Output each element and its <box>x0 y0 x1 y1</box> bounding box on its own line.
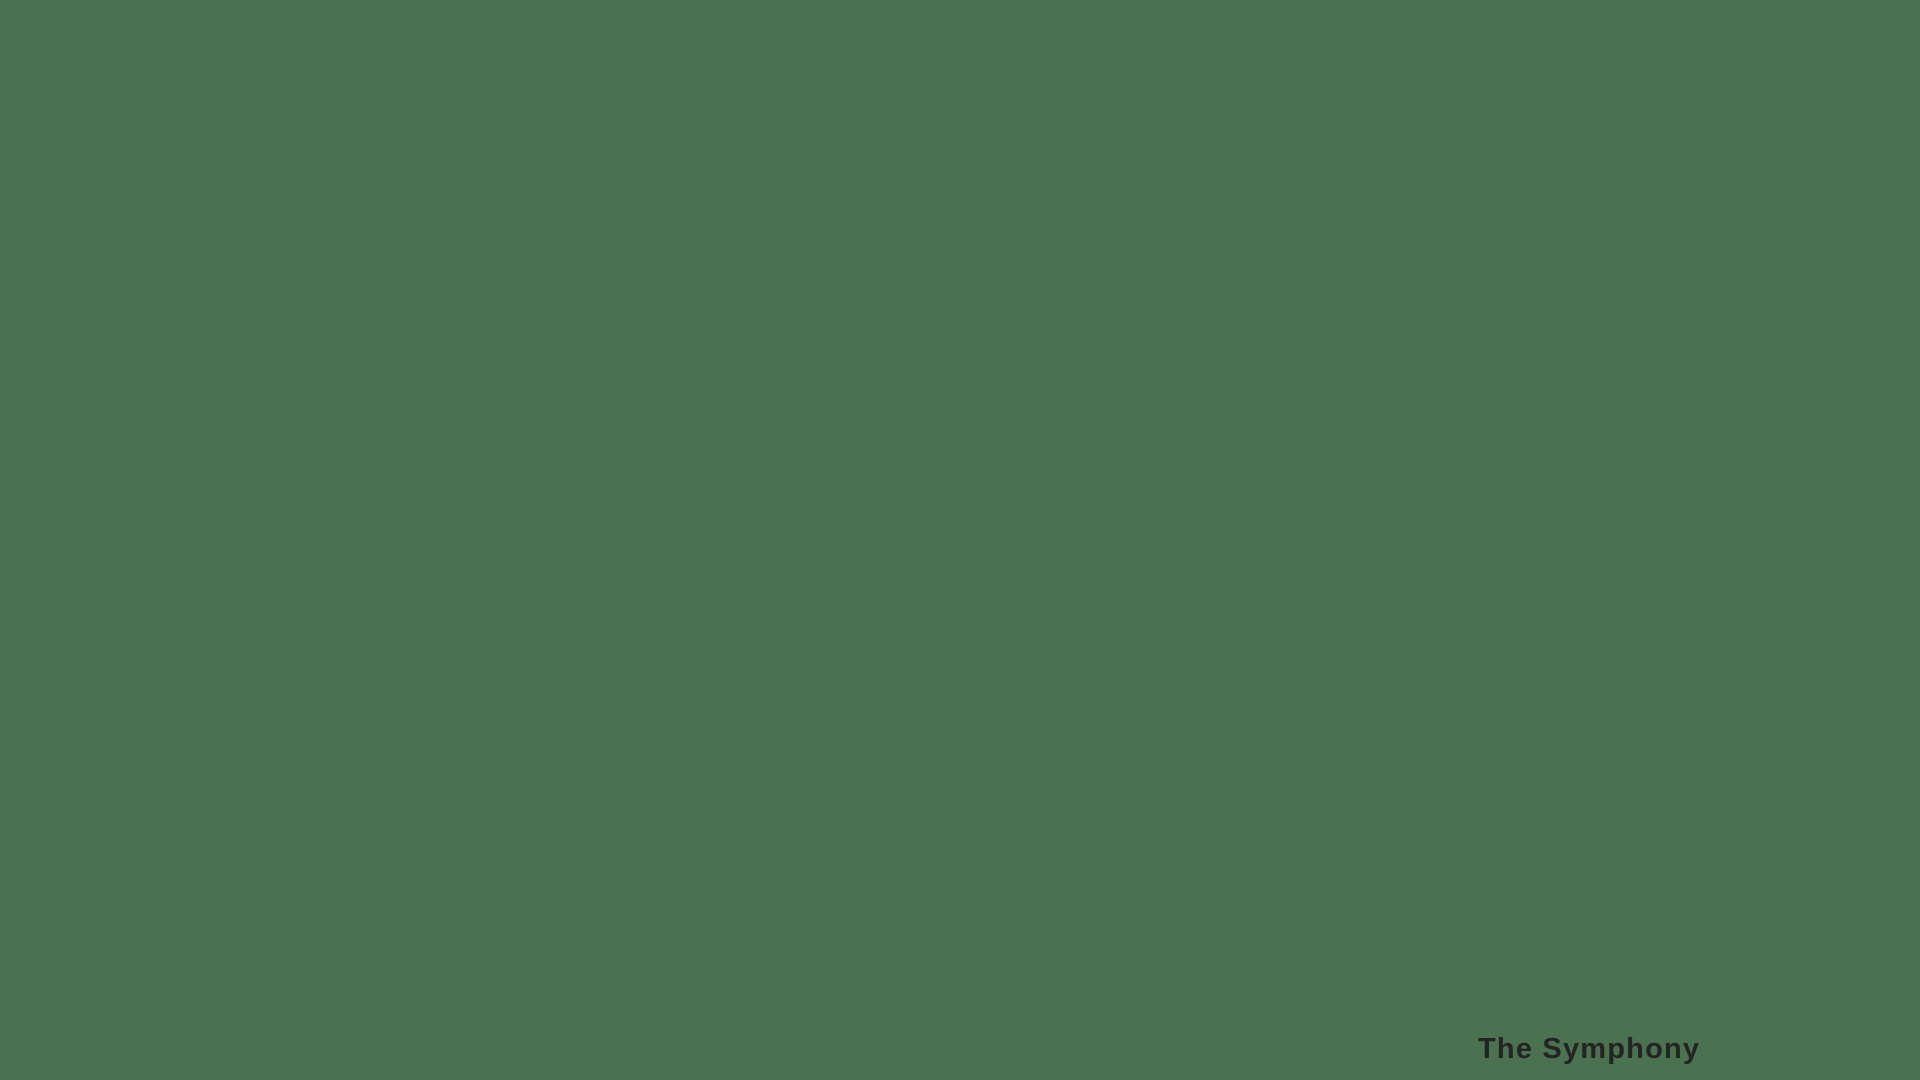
svg-text:The Symphony: The Symphony <box>1478 1033 1700 1065</box>
